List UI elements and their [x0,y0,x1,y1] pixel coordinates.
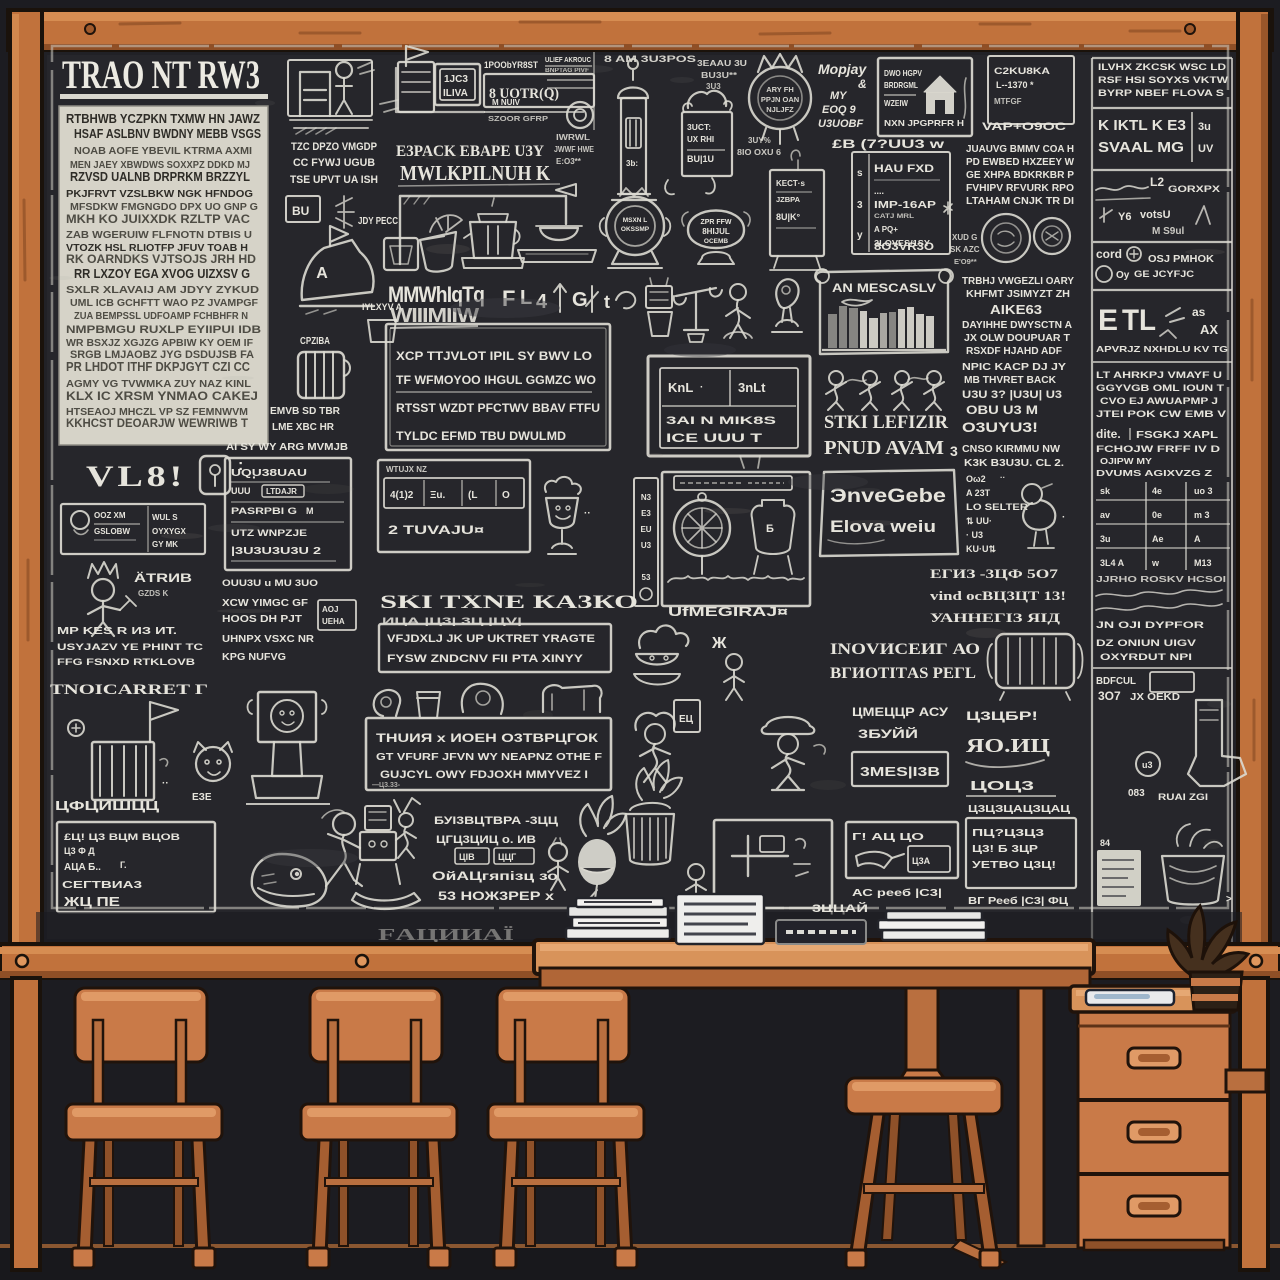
svg-text:M13: M13 [1194,558,1212,568]
svg-text:ЯО.ИЦ: ЯО.ИЦ [966,735,1051,757]
svg-text:·: · [1062,512,1065,523]
svg-text:EU: EU [640,525,651,534]
svg-text:L2: L2 [1150,175,1164,189]
svg-text:GE XHPA BDKRKBR P: GE XHPA BDKRKBR P [966,170,1074,181]
svg-text:WUL S: WUL S [152,513,178,522]
svg-text:OUU3U u MU 3UO: OUU3U u MU 3UO [222,578,318,589]
svg-text:NOAB AOFE YBEVIL KTRMA AXMI: NOAB AOFE YBEVIL KTRMA AXMI [74,146,252,157]
svg-text:EMVB SD TBR: EMVB SD TBR [270,406,341,417]
svg-text:BDFCUL: BDFCUL [1096,676,1136,687]
svg-text:&: & [858,77,867,91]
svg-text:4e: 4e [1152,486,1162,496]
svg-text:MKH KO JUIXXDK RZLTP VAC: MKH KO JUIXXDK RZLTP VAC [66,212,250,226]
svg-text:KECT·s: KECT·s [776,179,805,188]
svg-text:3МЕЅ|I3В: 3МЕЅ|I3В [860,764,940,779]
svg-text:VL8!: VL8! [86,460,186,493]
svg-text:IWRWL: IWRWL [556,133,590,142]
svg-text:Oω2: Oω2 [966,474,986,484]
svg-text:sk: sk [1100,486,1111,496]
svg-text:A: A [316,265,328,282]
svg-text:53: 53 [642,573,651,582]
svg-text:3b:: 3b: [626,159,638,168]
svg-text:XCW YIMGC GF: XCW YIMGC GF [222,598,308,609]
svg-text:s: s [857,168,863,179]
svg-text:A: A [1194,534,1201,544]
svg-text:FFG FSNXD RTKLOVB: FFG FSNXD RTKLOVB [57,657,195,668]
svg-text:Ц3А: Ц3А [912,856,931,866]
svg-text:(L: (L [468,490,477,501]
svg-text:PD EWBED HXZEEY W: PD EWBED HXZEEY W [966,157,1075,168]
svg-text:SKI TХNE КА3КО: SKI TХNE КА3КО [380,592,638,613]
svg-text:E3PACK EBAPE U3Y: E3PACK EBAPE U3Y [396,143,544,160]
svg-text:CC FYWJ UGUB: CC FYWJ UGUB [293,157,375,169]
svg-text:BU3U**: BU3U** [701,71,738,80]
svg-text:JWWF HWE: JWWF HWE [554,145,595,154]
svg-text:ЦГЦ3ЦИЦ о. ИВ: ЦГЦ3ЦИЦ о. ИВ [436,834,536,846]
svg-text:KLX IC XRSM YNMAO CAKEJ: KLX IC XRSM YNMAO CAKEJ [66,389,258,403]
svg-text:XUD G: XUD G [952,233,977,242]
svg-text:E:O3**: E:O3** [556,157,582,166]
svg-text:PNUD AVAM: PNUD AVAM [824,437,944,459]
svg-text:ICE UUU T: ICE UUU T [666,431,763,445]
svg-text:TRAO NT RW3: TRAO NT RW3 [62,52,260,97]
svg-text:U3: U3 [641,541,652,550]
svg-text:ЦΦЦИШЦЦ: ЦΦЦИШЦЦ [55,798,160,813]
svg-text:3u: 3u [1198,121,1211,133]
svg-text:M: M [306,506,314,516]
svg-text:ZPR FFW: ZPR FFW [700,219,731,226]
svg-text:GY MK: GY MK [152,540,178,549]
svg-text:y: y [857,230,863,241]
svg-text:Ж: Ж [711,635,727,652]
svg-text:LTAHAM CNJK TR DI: LTAHAM CNJK TR DI [966,196,1074,207]
svg-text:O: O [502,490,510,501]
svg-text:M NUIV: M NUIV [492,98,521,107]
svg-text:EOQ 9: EOQ 9 [822,104,857,116]
svg-text:SXLR XLAVAIJ AM JDYY ZYKUD: SXLR XLAVAIJ AM JDYY ZYKUD [66,285,259,296]
svg-text:DZ ONIUN UIGV: DZ ONIUN UIGV [1096,638,1197,649]
svg-text:3L4 A: 3L4 A [1100,558,1125,568]
svg-text:AЦA Б..: AЦA Б.. [64,862,101,873]
svg-text:BRDRGML: BRDRGML [884,80,918,90]
svg-text:DAYIHHE DWYSCTN A: DAYIHHE DWYSCTN A [962,320,1072,331]
svg-text:AOJ: AOJ [322,605,338,614]
svg-text:LME XBC HR: LME XBC HR [272,422,335,433]
svg-text:|3U3U3U3U 2: |3U3U3U3U 2 [231,546,322,557]
svg-text:53 НОЖ3РEР х: 53 НОЖ3РEР х [438,889,554,903]
svg-text:CATJ MRL: CATJ MRL [874,213,914,220]
svg-text:2 TUVAJU¤: 2 TUVAJU¤ [388,523,484,537]
svg-text:HSAF ASLBNV BWDNY MEBB VSGS: HSAF ASLBNV BWDNY MEBB VSGS [74,126,261,141]
svg-text:KKHCST DEOARJW WEWRIWB T: KKHCST DEOARJW WEWRIWB T [66,416,249,430]
svg-text:CNSO KIRMMU NW: CNSO KIRMMU NW [962,444,1061,455]
svg-text:RTBHWB YCZPKN TXMW HN JAWZ: RTBHWB YCZPKN TXMW HN JAWZ [66,111,260,126]
svg-text:Ц3! Б 3ЦР: Ц3! Б 3ЦР [972,844,1038,855]
svg-text:··: ·· [584,508,591,519]
svg-text:TНUИЯ х ИОЕН О3TВРЦГОК: TНUИЯ х ИОЕН О3TВРЦГОК [376,731,599,745]
svg-text:OCEMB: OCEMB [704,238,729,245]
svg-text:uo 3: uo 3 [1194,486,1213,496]
svg-text:··: ·· [1000,473,1005,482]
svg-text:BU: BU [292,204,309,218]
svg-text:SVAAL MG: SVAAL MG [1098,139,1184,156]
svg-text:INОVИCEИГ АО: INОVИCEИГ АО [830,641,980,658]
svg-text:UEHA: UEHA [322,617,345,626]
svg-text:3u: 3u [1100,534,1111,544]
svg-text:RSF HSI SOYXS VKTW: RSF HSI SOYXS VKTW [1098,75,1228,86]
svg-text:··: ·· [162,778,169,789]
svg-text:K3K B3U3U. CL 2.: K3K B3U3U. CL 2. [964,458,1064,469]
svg-text:CЕГТВИА3: CЕГТВИА3 [62,880,143,891]
svg-text:TSE UPVT UA ISH: TSE UPVT UA ISH [290,174,378,186]
svg-text:G: G [572,289,588,311]
svg-text:ULIEF AKROUC: ULIEF AKROUC [545,57,591,64]
svg-text:av: av [1100,510,1110,520]
svg-text:3UCT:: 3UCT: [687,122,711,132]
svg-text:3БУЙЙ: 3БУЙЙ [858,726,918,741]
svg-text:Ae: Ae [1152,534,1164,544]
svg-text:SZOOR GFRP: SZOOR GFRP [488,116,548,123]
svg-text:USYJAZV YE PHINT TC: USYJAZV YE PHINT TC [57,642,203,653]
svg-text:Ц3ЦЗЦАЦЗЦАЦ: Ц3ЦЗЦАЦЗЦАЦ [968,804,1071,815]
svg-text:3O7: 3O7 [1098,689,1121,703]
svg-text:as: as [1192,305,1206,319]
svg-text:dite.: dite. [1096,427,1121,441]
svg-text:HOOS DH PJT: HOOS DH PJT [222,614,302,625]
svg-text:UfMEGIRAJ¤: UfMEGIRAJ¤ [668,604,788,619]
svg-text:CPZIBA: CPZIBA [300,336,330,347]
svg-text:E'O9**: E'O9** [954,257,977,266]
svg-text:MB THVRET BACK: MB THVRET BACK [964,375,1057,386]
svg-text:L--1370 *: L--1370 * [996,80,1034,90]
svg-text:АС рееб |С3|: АС рееб |С3| [852,887,942,899]
svg-text:· U3: · U3 [966,530,983,540]
svg-text:FYSW ZNDCNV FII PTA XINYY: FYSW ZNDCNV FII PTA XINYY [387,653,584,665]
svg-text:U3UOBF: U3UOBF [818,118,864,130]
svg-text:SK AZC: SK AZC [950,245,980,254]
svg-text:N3: N3 [641,493,652,502]
svg-text:KHFMT JSIMYZT ZH: KHFMT JSIMYZT ZH [966,289,1070,300]
svg-text:RTSST WZDT PFCTWV BBAV FTFU: RTSST WZDT PFCTWV BBAV FTFU [396,401,600,415]
svg-text:E: E [1098,304,1118,337]
svg-text:GT VFURF JFVN WY NEAPNZ OTHE F: GT VFURF JFVN WY NEAPNZ OTHE F [376,752,602,763]
svg-text:RK OARNDKS VJTSOJS JRH HD: RK OARNDKS VJTSOJS JRH HD [66,252,256,266]
svg-text:WTUJX NZ: WTUJX NZ [386,465,427,474]
svg-text:K IKTL K E3: K IKTL K E3 [1098,117,1186,134]
svg-text:BГИОТITАS РЕГL: BГИОТITАS РЕГL [830,665,976,682]
svg-text:GORXPX: GORXPX [1168,184,1220,194]
svg-text:3U3: 3U3 [706,82,721,91]
svg-text:KPG NUFVG: KPG NUFVG [222,652,286,663]
svg-text:MY: MY [830,90,848,102]
svg-text:ILVHX ZKCSK WSC LD: ILVHX ZKCSK WSC LD [1098,62,1226,73]
svg-text:M S9ul: M S9ul [1152,226,1184,237]
svg-text:FSGKJ XAPL: FSGKJ XAPL [1136,430,1218,441]
svg-text:8U|K°: 8U|K° [776,212,801,222]
svg-text:3: 3 [950,443,958,459]
svg-text:OOZ XM: OOZ XM [94,511,126,520]
svg-text:....: .... [874,186,884,196]
svg-text:CVO EJ AWUAPMP J: CVO EJ AWUAPMP J [1100,396,1218,406]
svg-text:OJIPW MY: OJIPW MY [1100,457,1153,466]
svg-text:8HIJUL: 8HIJUL [702,227,730,236]
svg-text:GSLOBW: GSLOBW [94,527,130,536]
svg-text:3AI N MIK8S: 3AI N MIK8S [666,415,776,427]
svg-text:GE JCYFJC: GE JCYFJC [1134,269,1195,279]
svg-text:84: 84 [1100,838,1110,848]
svg-text:БУI3ВЦTВРА -3ЦЦ: БУI3ВЦTВРА -3ЦЦ [434,815,558,827]
svg-text:·: · [700,382,703,393]
svg-text:TL: TL [1122,304,1156,337]
svg-text:EЗE: EЗE [192,792,212,803]
svg-text:A 23T: A 23T [966,488,991,498]
svg-text:LTDAJR: LTDAJR [266,487,297,496]
svg-text:NMPBMGU RUXLP EYIIPUI IDB: NMPBMGU RUXLP EYIIPUI IDB [66,324,261,336]
svg-text:AX: AX [1200,322,1218,337]
svg-text:E3: E3 [641,509,651,518]
svg-text:UX RHI: UX RHI [687,135,714,144]
svg-text:⇅ UU·: ⇅ UU· [966,516,992,526]
svg-text:RR LXZOY EGA XVOG UIZXSV G: RR LXZOY EGA XVOG UIZXSV G [74,266,250,281]
svg-text:Oy: Oy [1116,270,1130,281]
svg-text:LO SELTER: LO SELTER [966,502,1029,512]
svg-text:8IO OXU 6: 8IO OXU 6 [737,148,782,157]
svg-text:3UY%: 3UY% [748,136,771,145]
svg-text:ÄTRИB: ÄTRИB [134,570,192,585]
svg-text:MTFGF: MTFGF [994,97,1022,106]
svg-text:DVUMS AGIXVZG Z: DVUMS AGIXVZG Z [1096,468,1212,478]
svg-text:RSXDF HJAHD ADF: RSXDF HJAHD ADF [966,346,1062,357]
svg-text:Б: Б [766,523,774,535]
svg-text:ЦОЦ3: ЦОЦ3 [970,778,1034,793]
svg-text:JUAUVG BMMV COA H: JUAUVG BMMV COA H [966,144,1074,155]
svg-text:JZBPA: JZBPA [776,195,801,204]
svg-text:Г! АЦ ЦО: Г! АЦ ЦО [852,832,924,843]
svg-text:u3: u3 [1142,760,1153,770]
svg-text:A PQ+: A PQ+ [874,225,898,234]
svg-text:IMP-16AP: IMP-16AP [874,200,936,211]
svg-text:TYLDC EFMD TBU DWULMD: TYLDC EFMD TBU DWULMD [396,429,566,443]
svg-text:ОйAЦгяпiзц зо: ОйAЦгяпiзц зо [432,869,558,883]
svg-text:votsU: votsU [1140,209,1171,221]
svg-text:MSXN L: MSXN L [623,217,648,224]
svg-text:£Ц! Ц3 ВЦМ ВЦОВ: £Ц! Ц3 ВЦМ ВЦОВ [64,832,181,842]
svg-text:ЭnveGebe: ЭnveGebe [830,486,946,507]
svg-text:cord: cord [1096,247,1122,261]
svg-text:NPIC KACP DJ JY: NPIC KACP DJ JY [962,362,1066,373]
svg-text:EЦ: EЦ [679,714,694,725]
svg-text:ЦIВ: ЦIВ [459,852,475,862]
svg-text:Ц3ЦБР!: Ц3ЦБР! [966,709,1038,723]
svg-text:8 AM 3U3POS: 8 AM 3U3POS [604,54,696,64]
svg-text:UHNPX VSXC NR: UHNPX VSXC NR [222,634,315,645]
svg-text:JJRHO ROSKV HCSOI: JJRHO ROSKV HCSOI [1096,575,1226,584]
svg-text:OKSSMP: OKSSMP [621,226,650,233]
svg-text:Ξu.: Ξu. [430,490,446,501]
svg-text:WR BSXJZ XGJZG APBIW KY OEM IF: WR BSXJZ XGJZG APBIW KY OEM IF [66,338,253,349]
svg-text:GZDS K: GZDS K [138,589,168,598]
svg-text:OXYRDUT NPI: OXYRDUT NPI [1100,652,1192,662]
svg-text:JX OLW DOUPUAR T: JX OLW DOUPUAR T [964,333,1070,344]
svg-text:DWO HGPV: DWO HGPV [884,68,922,78]
svg-text:t: t [604,292,610,312]
svg-text:ZUA BEMPSSL UDFOAMP FCHBHFR N: ZUA BEMPSSL UDFOAMP FCHBHFR N [74,311,248,322]
svg-text:Ц3 Ф Д: Ц3 Ф Д [64,846,95,856]
svg-text:AIKE63: AIKE63 [990,302,1042,317]
svg-text:8O3VR3O: 8O3VR3O [874,241,935,253]
svg-text:UV: UV [1198,143,1214,155]
svg-text:LT AHRKPJ VMAYF U: LT AHRKPJ VMAYF U [1096,370,1222,380]
svg-text:PR LHDOT ITHF DKPJGYT CZI CC: PR LHDOT ITHF DKPJGYT CZI CC [66,359,251,374]
svg-text:£B (7?UU3 w: £B (7?UU3 w [832,137,945,151]
svg-text:JTEI POK CW EMB V: JTEI POK CW EMB V [1096,409,1226,419]
svg-text:0e: 0e [1152,510,1162,520]
svg-text:UQU38UAU: UQU38UAU [231,468,307,479]
svg-text:AI SY WY ARG MVMJB: AI SY WY ARG MVMJB [226,442,348,453]
svg-text:UML ICB GCHFTT WAO PZ JVAMPGF: UML ICB GCHFTT WAO PZ JVAMPGF [70,298,258,309]
svg-text:JDY PECC: JDY PECC [358,216,398,227]
svg-text:ЕГИЗ -3ЦФ 5О7: ЕГИЗ -3ЦФ 5О7 [930,566,1059,581]
svg-text:KnL: KnL [668,380,693,395]
svg-text:JX OEKD: JX OEKD [1130,692,1180,703]
svg-text:VAP+O9OC: VAP+O9OC [982,121,1066,133]
svg-text:TF WFMOYOO IHGUL GGMZC WO: TF WFMOYOO IHGUL GGMZC WO [396,373,596,387]
svg-text:Y6: Y6 [1118,211,1131,223]
svg-text:4(1)2: 4(1)2 [390,490,414,501]
svg-text:AN MESCASLV: AN MESCASLV [832,281,936,295]
svg-text:3nLt: 3nLt [738,380,766,395]
svg-text:O3UYU3!: O3UYU3! [962,419,1038,435]
svg-text:WZEIW: WZEIW [884,98,909,108]
svg-text:m 3: m 3 [1194,510,1210,520]
svg-text:OBU U3 M: OBU U3 M [966,403,1038,417]
svg-text:U3U 3? |U3U| U3: U3U 3? |U3U| U3 [962,389,1062,401]
svg-text:NJLJFZ: NJLJFZ [766,105,794,114]
svg-text:MWLKPILNUH K: MWLKPILNUH K [400,161,551,185]
svg-text:ZAB WGERUIW FLFNOTN DTBIS U: ZAB WGERUIW FLFNOTN DTBIS U [66,230,252,241]
svg-text:TRBHJ VWGEZLI OARY: TRBHJ VWGEZLI OARY [962,276,1074,287]
svg-text:ВГ Рееб |С3| ФЦ: ВГ Рееб |С3| ФЦ [968,895,1069,907]
svg-text:ARY FH: ARY FH [766,85,794,94]
svg-text:RZVSD UALNB DRPRKM BRZZYL: RZVSD UALNB DRPRKM BRZZYL [70,169,250,184]
svg-text:PKJFRVT VZSLBKW NGK HFNDOG: PKJFRVT VZSLBKW NGK HFNDOG [66,189,253,200]
svg-text:3: 3 [857,200,863,211]
svg-text:GUJCYL OWY FDJOXH MMYVEZ I: GUJCYL OWY FDJOXH MMYVEZ I [380,769,588,781]
svg-text:UUU: UUU [231,486,251,496]
svg-text:—Ц3.33-: —Ц3.33- [372,782,401,789]
svg-text:ILIVA: ILIVA [443,88,468,99]
svg-text:Г.: Г. [120,860,126,870]
svg-text:HAU FXD: HAU FXD [874,163,934,175]
svg-text:Mopjay: Mopjay [818,61,867,77]
svg-text:TZC DPZO VMGDP: TZC DPZO VMGDP [291,141,377,153]
svg-text:УАННЕГІЗ ЯІД: УАННЕГІЗ ЯІД [930,610,1060,625]
svg-text:ЦЦГ: ЦЦГ [498,852,516,862]
svg-text:BYRP NBEF FLOVA S: BYRP NBEF FLOVA S [1098,88,1224,99]
svg-text:vind ocВЦ3ЦТ 13!: vind ocВЦ3ЦТ 13! [930,588,1066,603]
svg-text:FCHOJW FRFF IV D: FCHOJW FRFF IV D [1096,444,1221,454]
svg-text:APVRJZ NXHDLU KV TG: APVRJZ NXHDLU KV TG [1096,344,1229,354]
svg-text:NXN JPGPRFR H: NXN JPGPRFR H [884,118,964,128]
svg-text:Elova weiu: Elova weiu [830,517,936,536]
svg-text:083: 083 [1128,788,1145,799]
svg-text:XCP TTJVLOT IPIL SY BWV LO: XCP TTJVLOT IPIL SY BWV LO [396,349,592,363]
svg-text:1POObYR8ST: 1POObYR8ST [484,60,538,71]
svg-text:ЦМЕЦЦР АСУ: ЦМЕЦЦР АСУ [852,705,949,719]
svg-text:w: w [1151,558,1160,568]
svg-text:GGYVGB OML IOUN T: GGYVGB OML IOUN T [1096,383,1225,393]
svg-text:PPJN OAN: PPJN OAN [761,95,799,104]
svg-text:FVHIPV RFVURK RPO: FVHIPV RFVURK RPO [966,183,1074,194]
svg-text:3EAAU 3U: 3EAAU 3U [697,59,747,68]
svg-text:>: > [1226,894,1232,905]
svg-text:VFJDXLJ JK UP UKTRET YRAGTE: VFJDXLJ JK UP UKTRET YRAGTE [387,633,595,645]
svg-text:BU|1U: BU|1U [687,154,714,164]
svg-text:ЖЦ ПЕ: ЖЦ ПЕ [63,894,121,909]
svg-text:KU·U⇅: KU·U⇅ [966,544,996,554]
svg-text:TNOICАRRET Г: TNOICАRRET Г [50,682,208,698]
svg-text:PASRPBI G: PASRPBI G [231,506,297,516]
svg-text:УЕТВО Ц3Ц!: УЕТВО Ц3Ц! [972,860,1056,871]
svg-text:STKI LEFIZIR: STKI LEFIZIR [824,412,948,433]
svg-text:1JC3: 1JC3 [444,74,468,85]
svg-text:JN OJI DYPFOR: JN OJI DYPFOR [1096,620,1205,630]
svg-text:C2KU8KA: C2KU8KA [994,66,1050,77]
svg-text:OSJ PMHOK: OSJ PMHOK [1148,254,1215,265]
svg-text:MP KES R ИЗ ИT.: MP KES R ИЗ ИT. [57,626,177,637]
svg-text:ПЦ?Ц3Ц3: ПЦ?Ц3Ц3 [972,828,1045,839]
svg-text:RUAI ZGI: RUAI ZGI [1158,792,1208,802]
